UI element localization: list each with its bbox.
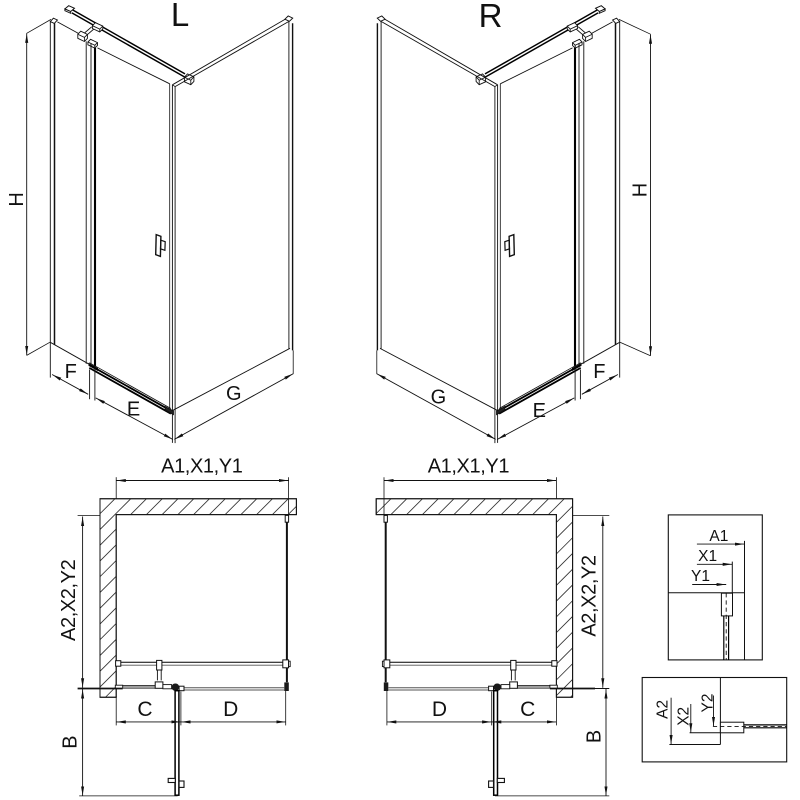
svg-text:D: D: [223, 698, 238, 721]
svg-text:G: G: [431, 386, 447, 408]
svg-text:A2,X2,Y2: A2,X2,Y2: [579, 555, 601, 637]
svg-text:B: B: [584, 730, 606, 743]
svg-text:G: G: [226, 383, 242, 405]
svg-text:E: E: [533, 400, 546, 422]
svg-text:A1,X1,Y1: A1,X1,Y1: [428, 456, 510, 478]
svg-text:L: L: [171, 0, 189, 33]
svg-text:A2,X2,Y2: A2,X2,Y2: [58, 559, 80, 641]
svg-text:A1,X1,Y1: A1,X1,Y1: [161, 456, 243, 478]
svg-text:H: H: [6, 192, 28, 206]
svg-text:R: R: [479, 0, 503, 34]
svg-text:H: H: [629, 183, 651, 197]
svg-text:X2: X2: [676, 707, 693, 726]
svg-text:F: F: [65, 361, 77, 383]
svg-text:Y1: Y1: [691, 568, 710, 585]
svg-text:D: D: [432, 698, 447, 721]
svg-text:A1: A1: [709, 528, 728, 545]
svg-text:B: B: [60, 735, 82, 748]
svg-text:F: F: [593, 361, 605, 383]
svg-text:A2: A2: [655, 700, 672, 719]
svg-text:X1: X1: [698, 548, 717, 565]
svg-text:C: C: [137, 698, 152, 721]
svg-text:C: C: [520, 698, 535, 721]
svg-text:E: E: [127, 398, 140, 420]
